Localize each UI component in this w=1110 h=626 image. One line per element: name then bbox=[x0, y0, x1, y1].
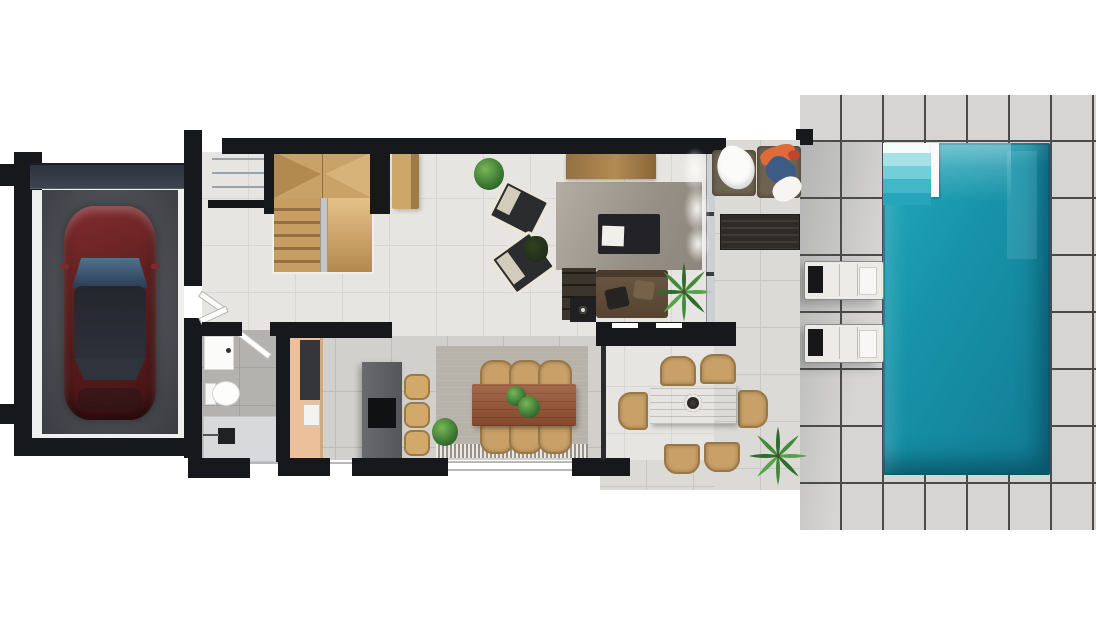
garage-wall bbox=[184, 318, 202, 458]
faucet bbox=[226, 348, 231, 353]
console-table bbox=[392, 153, 419, 209]
beach-item bbox=[788, 150, 800, 160]
outdoor-dining-chair bbox=[660, 356, 696, 386]
bar-stool bbox=[404, 374, 430, 400]
garage-wall bbox=[14, 438, 202, 456]
pool-steps bbox=[883, 143, 931, 205]
lounger-seam bbox=[857, 264, 858, 296]
lounger-pad bbox=[859, 330, 877, 358]
cooktop bbox=[368, 398, 396, 428]
kitchen-sink bbox=[303, 404, 320, 426]
table-plant bbox=[518, 396, 540, 418]
toilet bbox=[212, 381, 240, 406]
outdoor-coffee-table bbox=[720, 214, 800, 250]
potted-plant bbox=[524, 236, 548, 262]
stair-flight bbox=[326, 198, 372, 272]
lounger-seam bbox=[839, 264, 840, 296]
vanity-sink bbox=[204, 336, 234, 370]
armchair-cushion bbox=[497, 186, 521, 216]
sun-lounger bbox=[804, 261, 884, 300]
wall-segment bbox=[276, 336, 290, 462]
stair-stringer bbox=[320, 198, 328, 272]
stair-landing-seam bbox=[322, 152, 323, 198]
garage-wall bbox=[14, 152, 32, 456]
window bbox=[448, 461, 572, 463]
wall-segment bbox=[276, 322, 392, 338]
shower-drain bbox=[218, 428, 235, 444]
pool-shelf bbox=[1007, 151, 1037, 259]
dining-chair bbox=[538, 424, 572, 454]
bar-stool bbox=[404, 430, 430, 456]
window bbox=[330, 462, 352, 464]
tv-console bbox=[566, 154, 656, 179]
swimming-pool bbox=[883, 143, 1050, 475]
garage-wall bbox=[184, 130, 202, 286]
pool-step bbox=[883, 193, 931, 205]
wall-window-slit bbox=[612, 323, 638, 328]
car-roof bbox=[74, 286, 146, 360]
wall-segment bbox=[572, 458, 630, 476]
pool-step bbox=[883, 153, 931, 166]
wall-segment bbox=[352, 458, 448, 476]
bar-stool bbox=[404, 402, 430, 428]
shower bbox=[203, 416, 282, 462]
sun-lounger bbox=[804, 324, 884, 363]
wall-segment bbox=[370, 152, 390, 214]
pool-step bbox=[883, 143, 931, 153]
wall-segment bbox=[278, 458, 330, 476]
pool-water-highlight bbox=[939, 143, 1011, 201]
floor-plan bbox=[0, 0, 1110, 626]
wall-window-slit bbox=[656, 323, 682, 328]
car-mirror bbox=[60, 264, 69, 269]
car bbox=[64, 206, 156, 420]
garage-wall bbox=[0, 404, 16, 424]
outdoor-dining-chair bbox=[618, 392, 648, 430]
stair-treads bbox=[274, 198, 320, 272]
wall-segment bbox=[222, 138, 726, 154]
front-door-sill bbox=[208, 200, 266, 208]
garage-door bbox=[30, 163, 184, 189]
lounger-headrest bbox=[808, 329, 823, 356]
table-lamp bbox=[579, 306, 587, 314]
potted-plant bbox=[474, 158, 504, 190]
pool-step bbox=[883, 179, 931, 193]
palm-plant bbox=[746, 424, 810, 488]
coffee-table-tray bbox=[602, 226, 625, 247]
outdoor-dining-chair bbox=[738, 390, 768, 428]
staircase bbox=[274, 152, 372, 272]
outdoor-dining-chair bbox=[664, 444, 700, 474]
sliding-door-track bbox=[601, 346, 606, 460]
lounger-seam bbox=[857, 327, 858, 359]
window bbox=[250, 462, 278, 464]
pool-ledge bbox=[931, 143, 939, 197]
potted-plant bbox=[432, 418, 458, 446]
lounger-seam bbox=[839, 327, 840, 359]
car-windshield bbox=[72, 258, 148, 288]
window bbox=[448, 469, 572, 471]
centerpiece-bowl bbox=[684, 394, 702, 412]
wall-segment bbox=[202, 322, 242, 336]
pampas-plant bbox=[686, 226, 710, 262]
kitchen-appliance bbox=[300, 340, 320, 400]
lounger-headrest bbox=[808, 266, 823, 293]
car-rear-window bbox=[74, 358, 146, 380]
outdoor-dining-chair bbox=[700, 354, 736, 384]
glass-wall-frame bbox=[706, 272, 714, 276]
wall-segment bbox=[264, 152, 274, 214]
lounger-pad bbox=[859, 267, 877, 295]
car-mirror bbox=[151, 264, 160, 269]
shower-pipe bbox=[203, 434, 219, 436]
car-trunk bbox=[78, 388, 142, 410]
wall-segment bbox=[188, 458, 250, 478]
outdoor-dining-chair bbox=[704, 442, 740, 472]
pool-step bbox=[883, 166, 931, 179]
entry-steps bbox=[212, 146, 264, 202]
